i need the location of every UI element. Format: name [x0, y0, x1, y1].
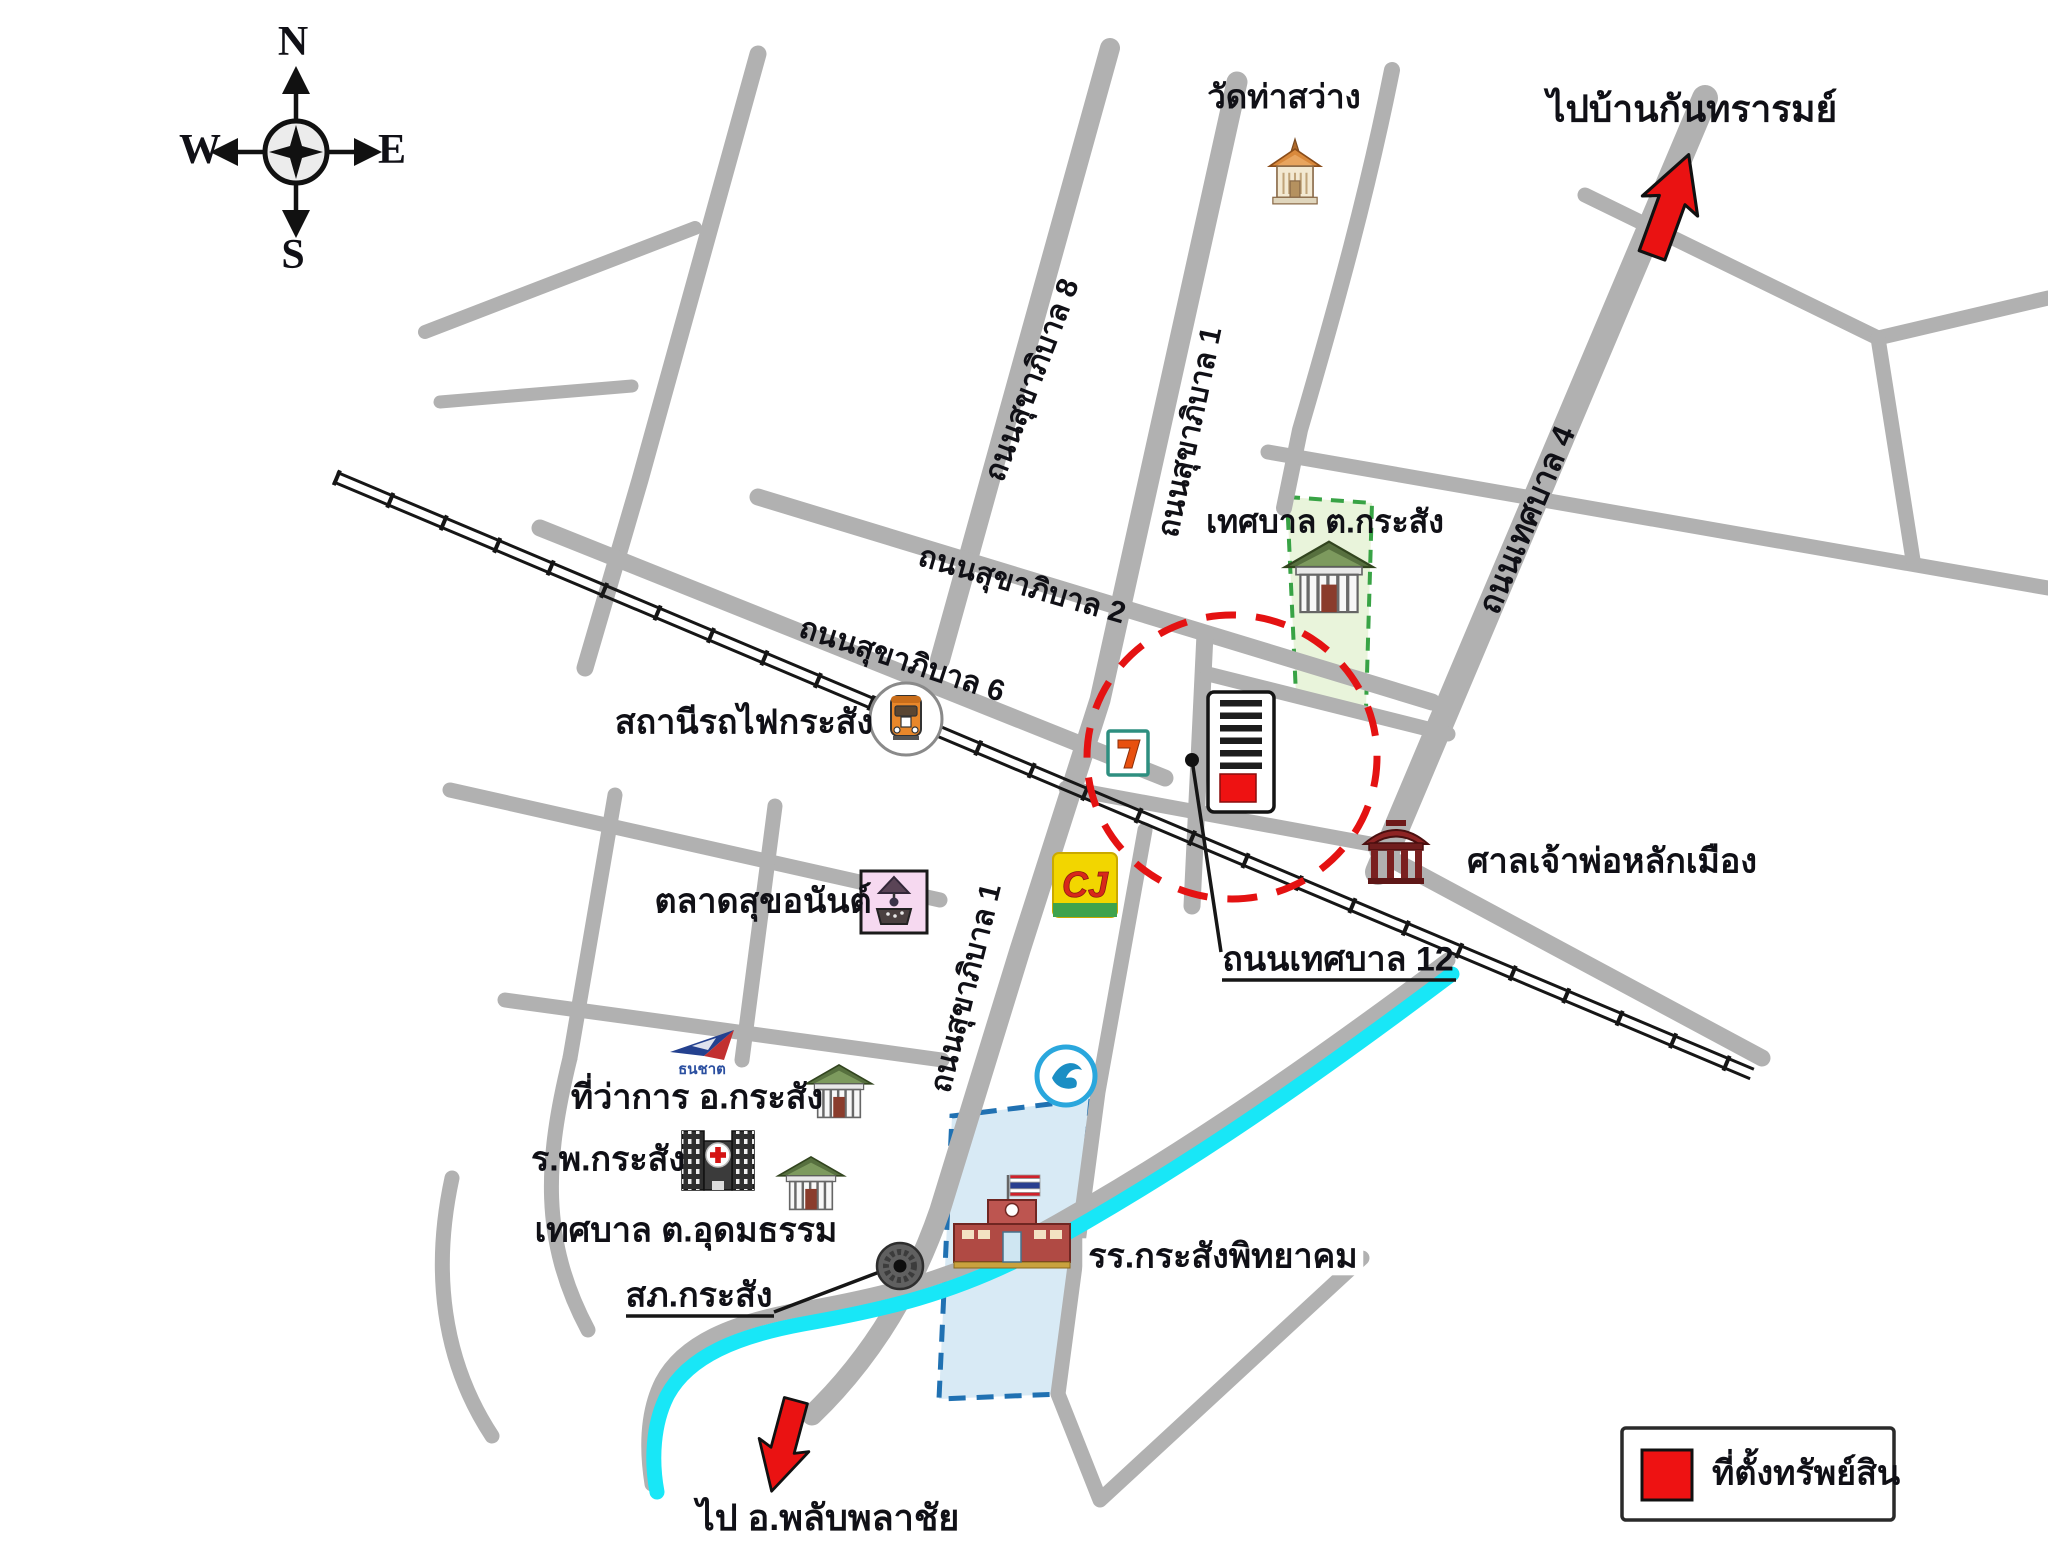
police-station-icon	[877, 1243, 923, 1289]
road-school-east	[1058, 830, 1362, 1500]
map-graphic: CJ	[0, 0, 2048, 1565]
road-minor-west-stub	[440, 386, 632, 402]
hospital-icon	[682, 1131, 754, 1190]
train-station-label: สถานีรถไฟกระสัง	[615, 704, 873, 741]
thanachart-bank-label: ธนชาต	[678, 1062, 726, 1079]
destination-northeast-label: ไปบ้านกันทรารมย์	[1547, 90, 1837, 131]
municipality-udomtham-building-icon	[778, 1157, 844, 1209]
seven-eleven-icon	[1108, 731, 1148, 775]
destination-south-label: ไป อ.พลับพลาชัย	[697, 1498, 960, 1538]
compass-east-label: E	[378, 127, 406, 173]
railway	[333, 472, 1754, 1078]
municipality-krasang-label: เทศบาล ต.กระสัง	[1206, 504, 1444, 539]
road-thesaban-12-label: ถนนเทศบาล 12	[1222, 941, 1453, 978]
compass-rose-icon	[210, 66, 382, 238]
krungthai-bank-icon	[1037, 1047, 1095, 1105]
police-station-label: สภ.กระสัง	[625, 1277, 772, 1314]
district-office-label: ที่ว่าการ อ.กระสัง	[571, 1079, 823, 1116]
cj-supermarket-icon	[1053, 853, 1117, 917]
legend-property-swatch	[1642, 1450, 1692, 1500]
hospital-label: ร.พ.กระสัง	[531, 1141, 685, 1178]
temple-label: วัดท่าสว่าง	[1207, 79, 1361, 115]
legend-property-label: ที่ตั้งทรัพย์สิน	[1712, 1455, 1900, 1492]
road-minor-sw-4	[742, 806, 775, 1060]
map-canvas: CJ	[0, 0, 2048, 1565]
compass-south-label: S	[281, 232, 304, 278]
compass-north-label: N	[278, 19, 308, 65]
property-building-icon	[1208, 692, 1274, 812]
road-minor-ne-3	[1878, 298, 2048, 338]
road-temple-side	[1284, 70, 1392, 508]
compass-west-label: W	[179, 127, 221, 173]
road-minor-ne-4	[1878, 338, 1913, 560]
temple-icon	[1270, 139, 1321, 204]
train-station-icon	[870, 683, 942, 755]
thesaban12-leader-dot	[1185, 753, 1199, 767]
shrine-label: ศาลเจ้าพ่อหลักเมือง	[1467, 843, 1757, 880]
market-label: ตลาดสุขอนันต์	[654, 883, 871, 920]
road-minor-sw-6	[442, 1178, 492, 1436]
municipality-udomtham-label: เทศบาล ต.อุดมธรรม	[535, 1212, 838, 1249]
school-label: รร.กระสังพิทยาคม	[1082, 1238, 1363, 1275]
road-minor-nw-branch	[425, 228, 695, 332]
